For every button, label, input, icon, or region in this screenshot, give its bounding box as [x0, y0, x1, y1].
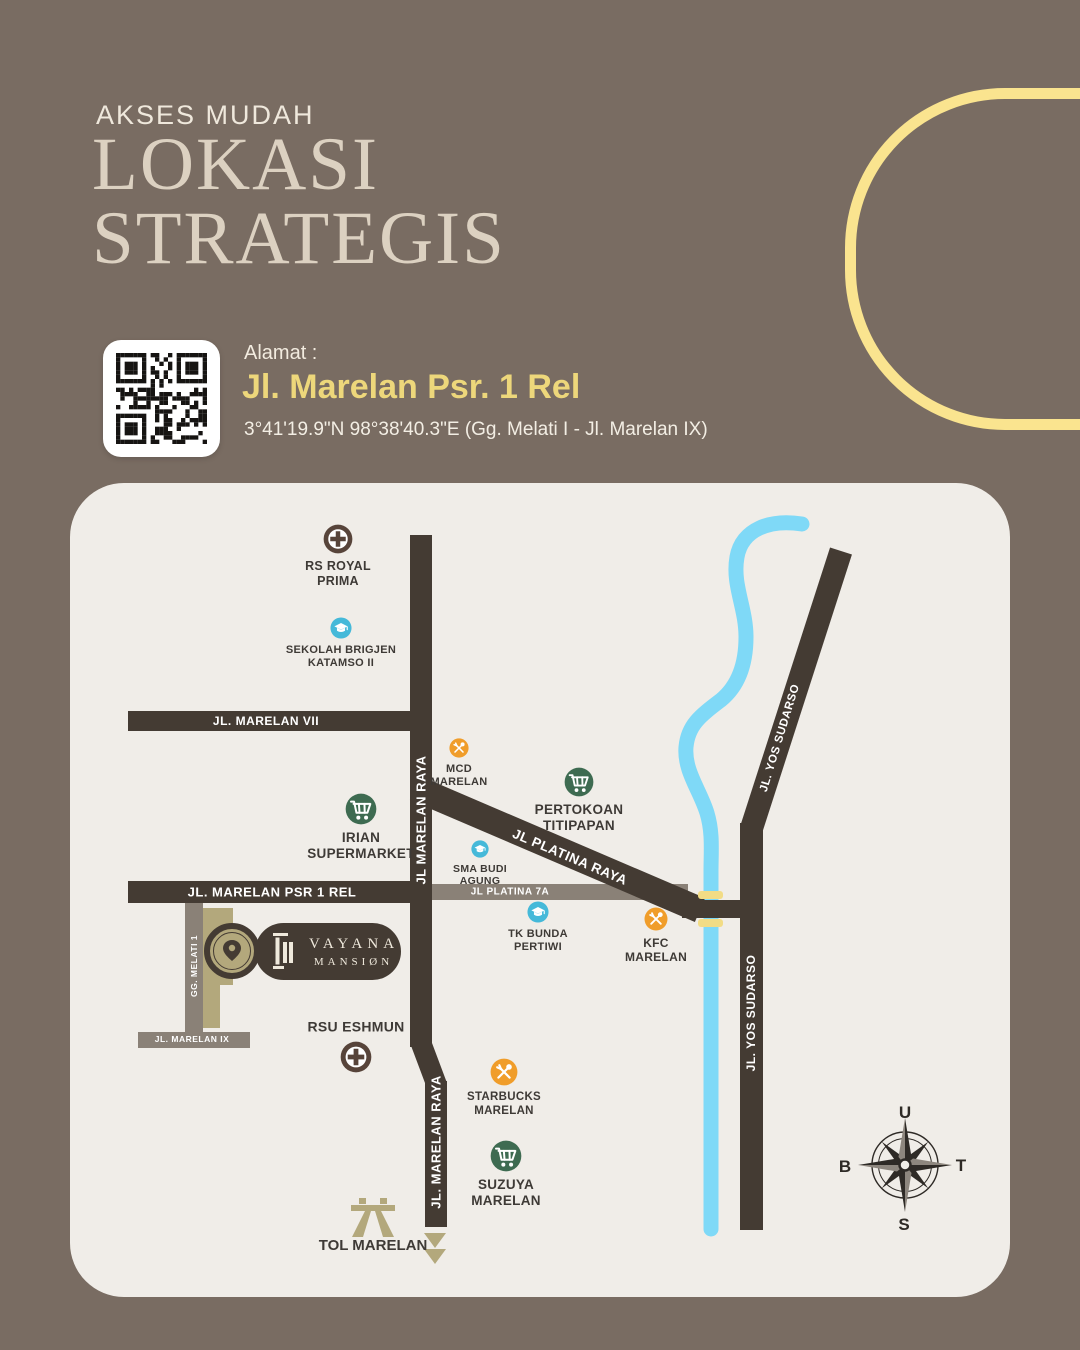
hospital-icon: [323, 524, 353, 554]
poi-label: SEKOLAH BRIGJENKATAMSO II: [286, 644, 396, 670]
location-pin-badge: [204, 923, 260, 979]
compass-south: S: [898, 1215, 909, 1235]
road-label-marelan-raya-upper: JL MARELAN RAYA: [414, 755, 429, 884]
restaurant-icon: [449, 738, 469, 758]
school-icon: [471, 840, 489, 858]
address-coordinates: 3°41'19.9"N 98°38'40.3"E (Gg. Melati I -…: [244, 419, 708, 441]
road-label-platina-7a: JL PLATINA 7A: [471, 887, 550, 898]
poi-label: RS ROYALPRIMA: [305, 559, 371, 589]
hospital-icon: [340, 1041, 372, 1073]
decorative-arc: [845, 88, 1080, 430]
road-label-yos-sudarso-lower: JL. YOS SUDARSO: [744, 955, 758, 1072]
address-street: Jl. Marelan Psr. 1 Rel: [242, 368, 580, 407]
columns-logo-icon: [273, 933, 295, 970]
poster: AKSES MUDAH LOKASI STRATEGIS Alamat : Jl…: [0, 0, 1080, 1350]
title-line-1: LOKASI: [92, 128, 506, 202]
brand-subname: MANSIØN: [314, 956, 393, 968]
bridge-mark: [698, 891, 723, 899]
brand-wordmark: VAYANA MANSIØN: [304, 936, 399, 968]
market-icon: [564, 767, 594, 797]
road-label-gg-melati-1: GG. MELATI 1: [189, 935, 199, 997]
road-label-marelan-vii: JL. MARELAN VII: [213, 714, 319, 728]
qr-card: [103, 340, 220, 457]
market-icon: [490, 1140, 522, 1172]
poi-label: SMA BUDIAGUNG: [453, 863, 507, 888]
restaurant-icon: [644, 907, 668, 931]
restaurant-icon: [490, 1058, 518, 1086]
poi-label: SUZUYAMARELAN: [471, 1177, 541, 1209]
compass-star-icon: [850, 1110, 960, 1220]
poi-label: STARBUCKSMARELAN: [467, 1091, 541, 1118]
school-icon: [330, 617, 352, 639]
qr-code: [116, 353, 207, 444]
compass-rose: U T S B: [840, 1100, 970, 1230]
compass-west: B: [839, 1157, 851, 1177]
poi-label: PERTOKOANTITIPAPAN: [535, 802, 624, 834]
compass-east: T: [956, 1156, 966, 1176]
compass-north: U: [899, 1103, 911, 1123]
road-label-marelan-ix: JL. MARELAN IX: [155, 1034, 230, 1044]
location-pin-icon: [221, 939, 243, 963]
poi-label: TK BUNDAPERTIWI: [508, 928, 568, 954]
highway-icon: [351, 1198, 395, 1237]
poi-label: KFCMARELAN: [625, 936, 687, 964]
location-map: JL. MARELAN VIIJL. MARELAN PSR 1 RELJL P…: [70, 483, 1010, 1297]
poi-label: RSU ESHMUN: [307, 1018, 404, 1035]
tol-marelan-label: TOL MARELAN: [319, 1237, 428, 1254]
title-line-2: STRATEGIS: [92, 202, 506, 276]
market-icon: [345, 793, 377, 825]
bridge-mark: [698, 919, 723, 927]
vayana-mansion-landmark: VAYANA MANSIØN: [255, 923, 401, 980]
road-label-marelan-psr-1-rel: JL. MARELAN PSR 1 REL: [188, 885, 357, 900]
poi-label: IRIANSUPERMARKET: [307, 830, 415, 862]
address-label: Alamat :: [244, 342, 317, 365]
poi-label: MCDMARELAN: [430, 763, 487, 789]
road-label-marelan-raya-lower: JL. MARELAN RAYA: [429, 1075, 444, 1208]
school-icon: [527, 901, 549, 923]
brand-name: VAYANA: [309, 936, 399, 953]
page-title: LOKASI STRATEGIS: [92, 128, 506, 275]
